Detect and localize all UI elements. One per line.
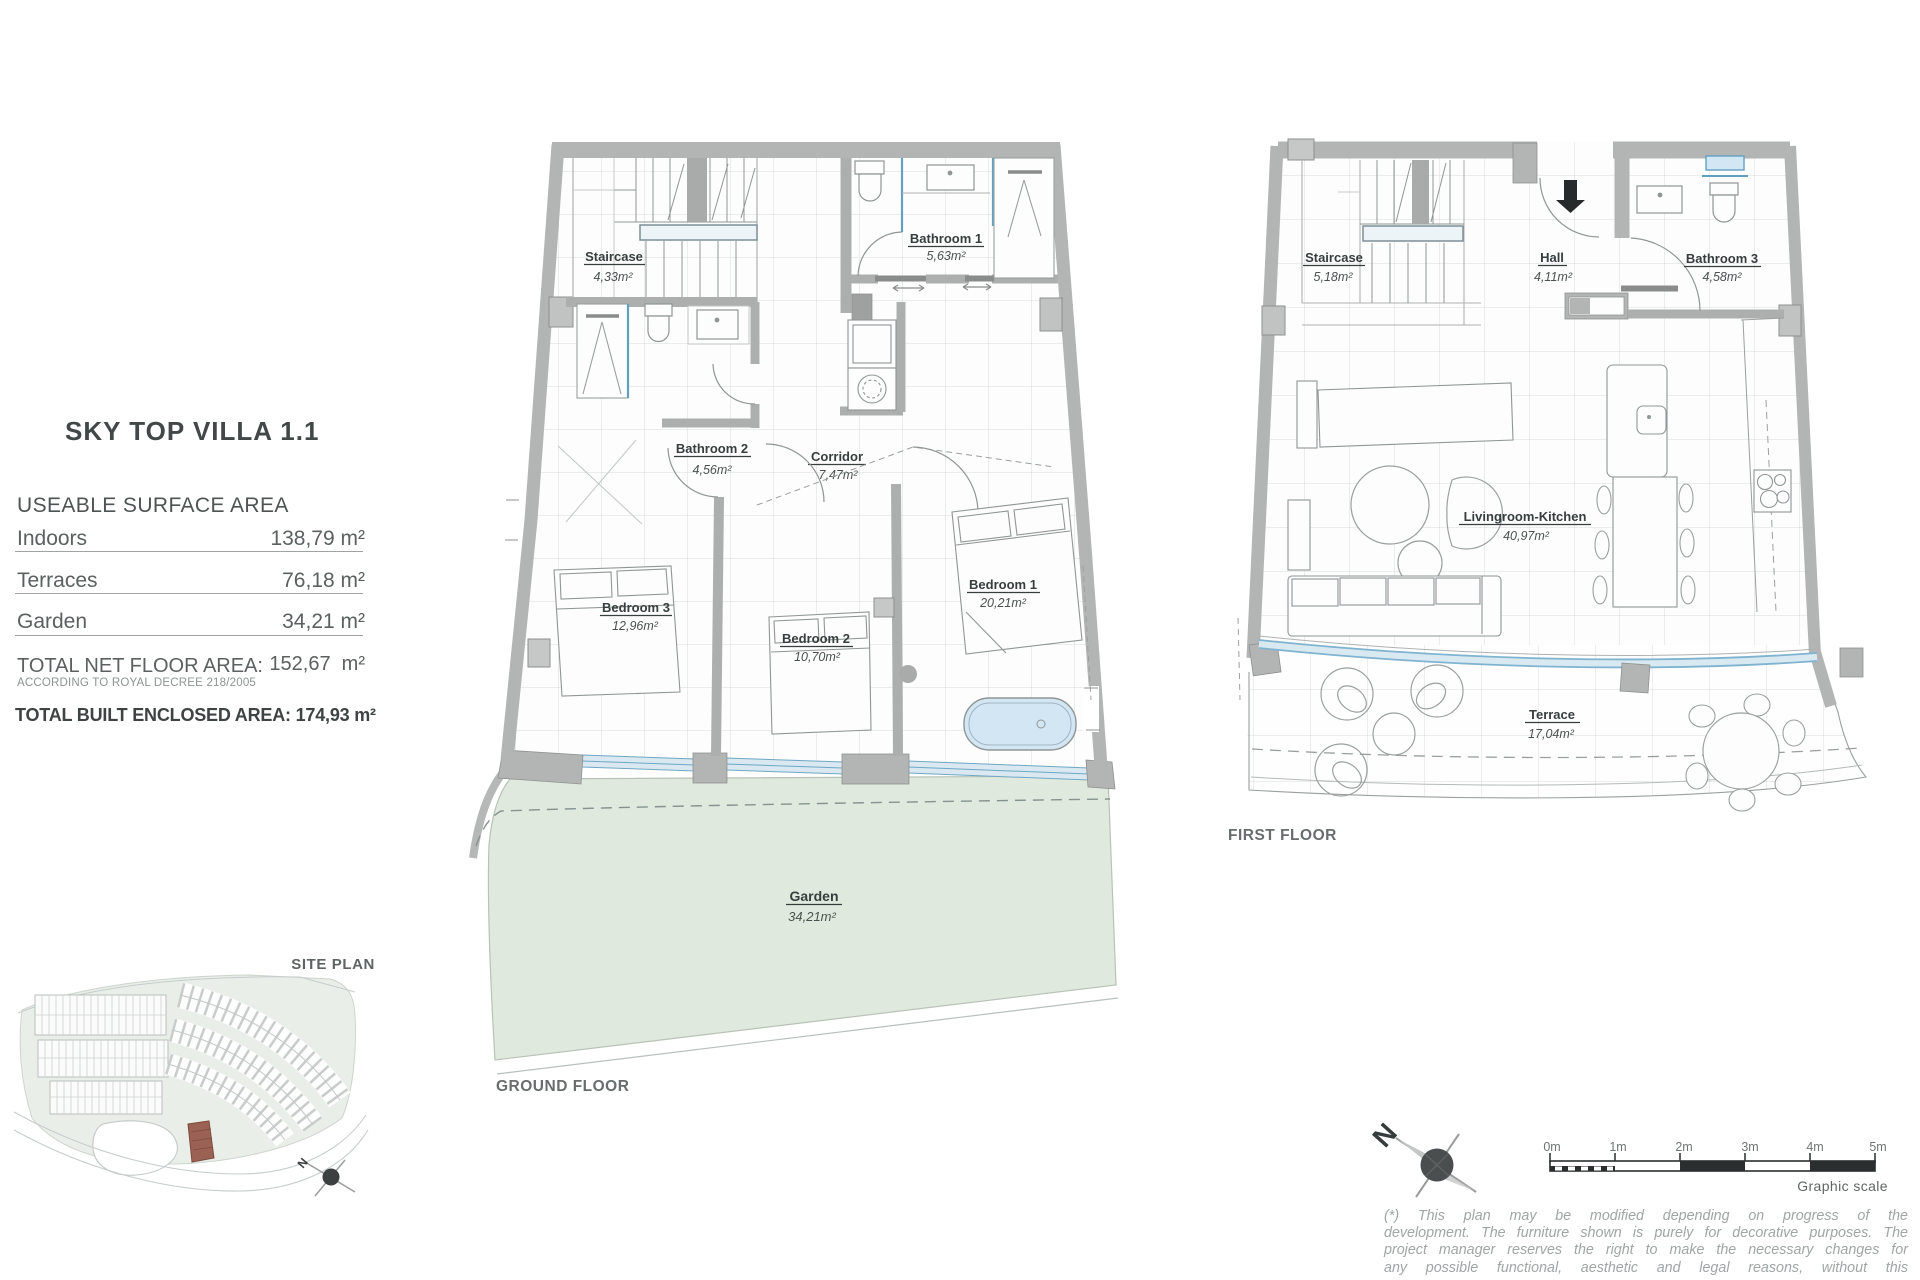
svg-text:Staircase: Staircase	[585, 249, 643, 264]
svg-text:Bedroom 2: Bedroom 2	[782, 631, 850, 646]
svg-text:4,56m²: 4,56m²	[693, 463, 733, 477]
svg-text:12,96m²: 12,96m²	[612, 619, 659, 633]
svg-text:4,33m²: 4,33m²	[594, 270, 634, 284]
svg-text:Bathroom 2: Bathroom 2	[676, 441, 748, 456]
svg-text:Terrace: Terrace	[1529, 707, 1575, 722]
svg-text:4m: 4m	[1806, 1140, 1823, 1154]
svg-text:5m: 5m	[1869, 1140, 1886, 1154]
svg-text:Staircase: Staircase	[1305, 250, 1363, 265]
svg-text:1m: 1m	[1609, 1140, 1626, 1154]
svg-text:Bathroom 3: Bathroom 3	[1686, 251, 1758, 266]
svg-text:Bedroom 3: Bedroom 3	[602, 600, 670, 615]
svg-text:N: N	[295, 1155, 311, 1171]
svg-text:Bedroom 1: Bedroom 1	[969, 577, 1037, 592]
svg-text:0m: 0m	[1543, 1140, 1560, 1154]
svg-text:4,11m²: 4,11m²	[1534, 270, 1573, 284]
svg-text:2m: 2m	[1675, 1140, 1692, 1154]
svg-text:4,58m²: 4,58m²	[1703, 270, 1743, 284]
svg-text:3m: 3m	[1741, 1140, 1758, 1154]
svg-text:17,04m²: 17,04m²	[1528, 727, 1575, 741]
svg-text:Bathroom 1: Bathroom 1	[910, 231, 982, 246]
svg-text:Hall: Hall	[1540, 250, 1564, 265]
svg-text:34,21m²: 34,21m²	[788, 909, 836, 924]
svg-text:N: N	[1366, 1117, 1403, 1153]
svg-text:5,18m²: 5,18m²	[1314, 270, 1354, 284]
svg-text:5,63m²: 5,63m²	[927, 249, 967, 263]
svg-text:Garden: Garden	[789, 888, 838, 904]
svg-text:Livingroom-Kitchen: Livingroom-Kitchen	[1464, 509, 1587, 524]
svg-text:20,21m²: 20,21m²	[979, 596, 1027, 610]
svg-text:40,97m²: 40,97m²	[1503, 529, 1550, 543]
svg-text:Corridor: Corridor	[811, 449, 863, 464]
svg-text:10,70m²: 10,70m²	[794, 650, 841, 664]
